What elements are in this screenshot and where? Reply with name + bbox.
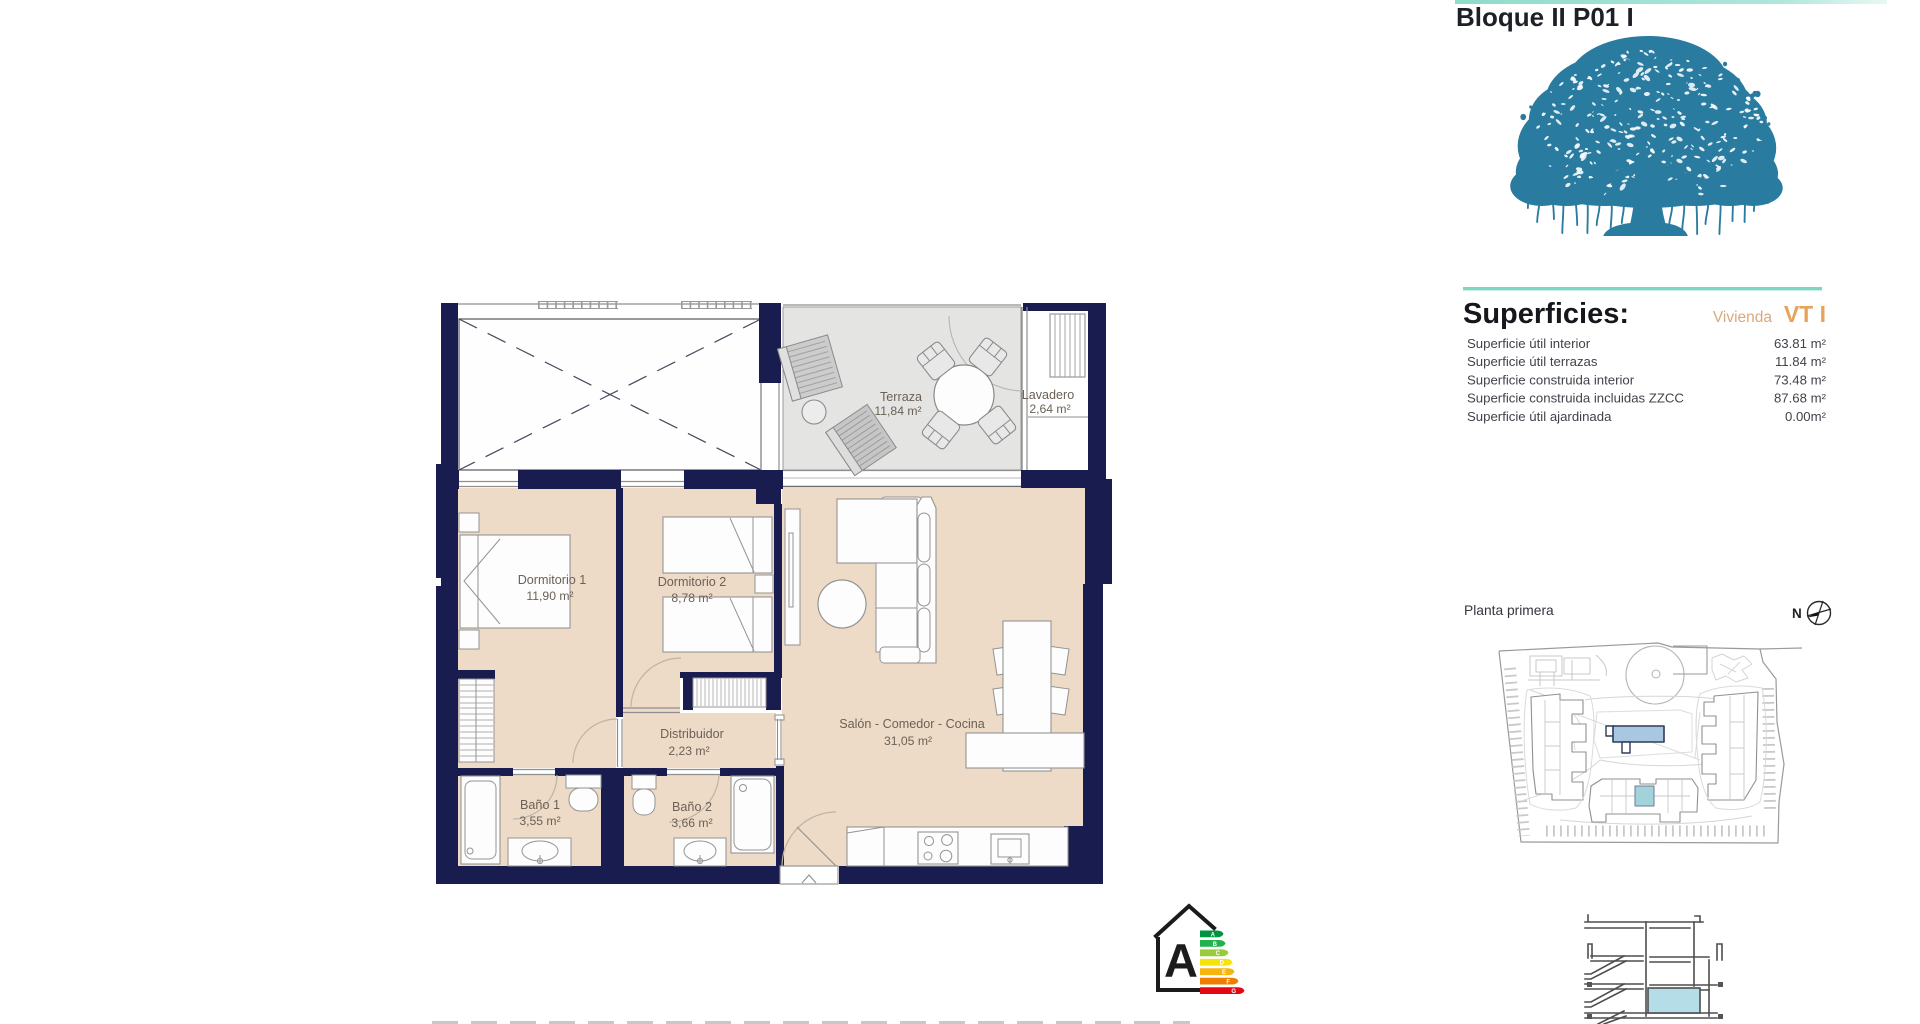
svg-text:87.68 m²: 87.68 m²: [1774, 391, 1827, 406]
svg-text:Dormitorio 2: Dormitorio 2: [658, 575, 727, 589]
svg-text:F: F: [1226, 980, 1230, 986]
svg-text:11,90 m²: 11,90 m²: [526, 589, 573, 603]
svg-text:Distribuidor: Distribuidor: [660, 727, 724, 741]
svg-text:8,78 m²: 8,78 m²: [671, 591, 712, 605]
svg-text:Baño 2: Baño 2: [672, 800, 712, 814]
svg-text:Terraza: Terraza: [880, 390, 922, 404]
svg-text:11.84 m²: 11.84 m²: [1775, 354, 1827, 369]
svg-text:D: D: [1220, 961, 1225, 967]
svg-text:31,05 m²: 31,05 m²: [884, 734, 932, 748]
svg-text:0.00m²: 0.00m²: [1785, 409, 1827, 424]
svg-text:Superficies:: Superficies:: [1463, 298, 1629, 330]
svg-text:Superficie útil interior: Superficie útil interior: [1467, 336, 1591, 351]
svg-text:Vivienda: Vivienda: [1713, 309, 1773, 326]
svg-text:A: A: [1164, 934, 1198, 987]
svg-text:Baño 1: Baño 1: [520, 798, 560, 812]
svg-text:E: E: [1222, 970, 1226, 976]
svg-text:Lavadero: Lavadero: [1022, 388, 1075, 402]
svg-text:3,66 m²: 3,66 m²: [671, 816, 712, 830]
svg-text:Dormitorio 1: Dormitorio 1: [518, 573, 587, 587]
svg-text:B: B: [1213, 942, 1218, 948]
svg-text:3,55 m²: 3,55 m²: [519, 814, 560, 828]
svg-text:A: A: [1211, 932, 1216, 938]
svg-text:2,23 m²: 2,23 m²: [668, 744, 709, 758]
svg-text:Superficie útil terrazas: Superficie útil terrazas: [1467, 354, 1598, 369]
svg-text:Salón - Comedor - Cocina: Salón - Comedor - Cocina: [839, 717, 985, 731]
svg-text:Superficie construida incluida: Superficie construida incluidas ZZCC: [1467, 391, 1684, 406]
svg-text:Planta primera: Planta primera: [1464, 603, 1554, 618]
svg-text:11,84 m²: 11,84 m²: [874, 404, 921, 418]
svg-text:G: G: [1231, 989, 1236, 995]
svg-text:63.81 m²: 63.81 m²: [1774, 336, 1827, 351]
svg-text:Bloque II P01 I: Bloque II P01 I: [1456, 2, 1634, 32]
svg-text:C: C: [1216, 951, 1221, 957]
svg-text:73.48 m²: 73.48 m²: [1774, 372, 1827, 387]
svg-text:Superficie útil ajardinada: Superficie útil ajardinada: [1467, 409, 1612, 424]
svg-text:VT I: VT I: [1784, 301, 1826, 327]
svg-text:Superficie construida interior: Superficie construida interior: [1467, 372, 1635, 387]
svg-text:2,64 m²: 2,64 m²: [1029, 402, 1070, 416]
svg-text:N: N: [1792, 606, 1802, 621]
